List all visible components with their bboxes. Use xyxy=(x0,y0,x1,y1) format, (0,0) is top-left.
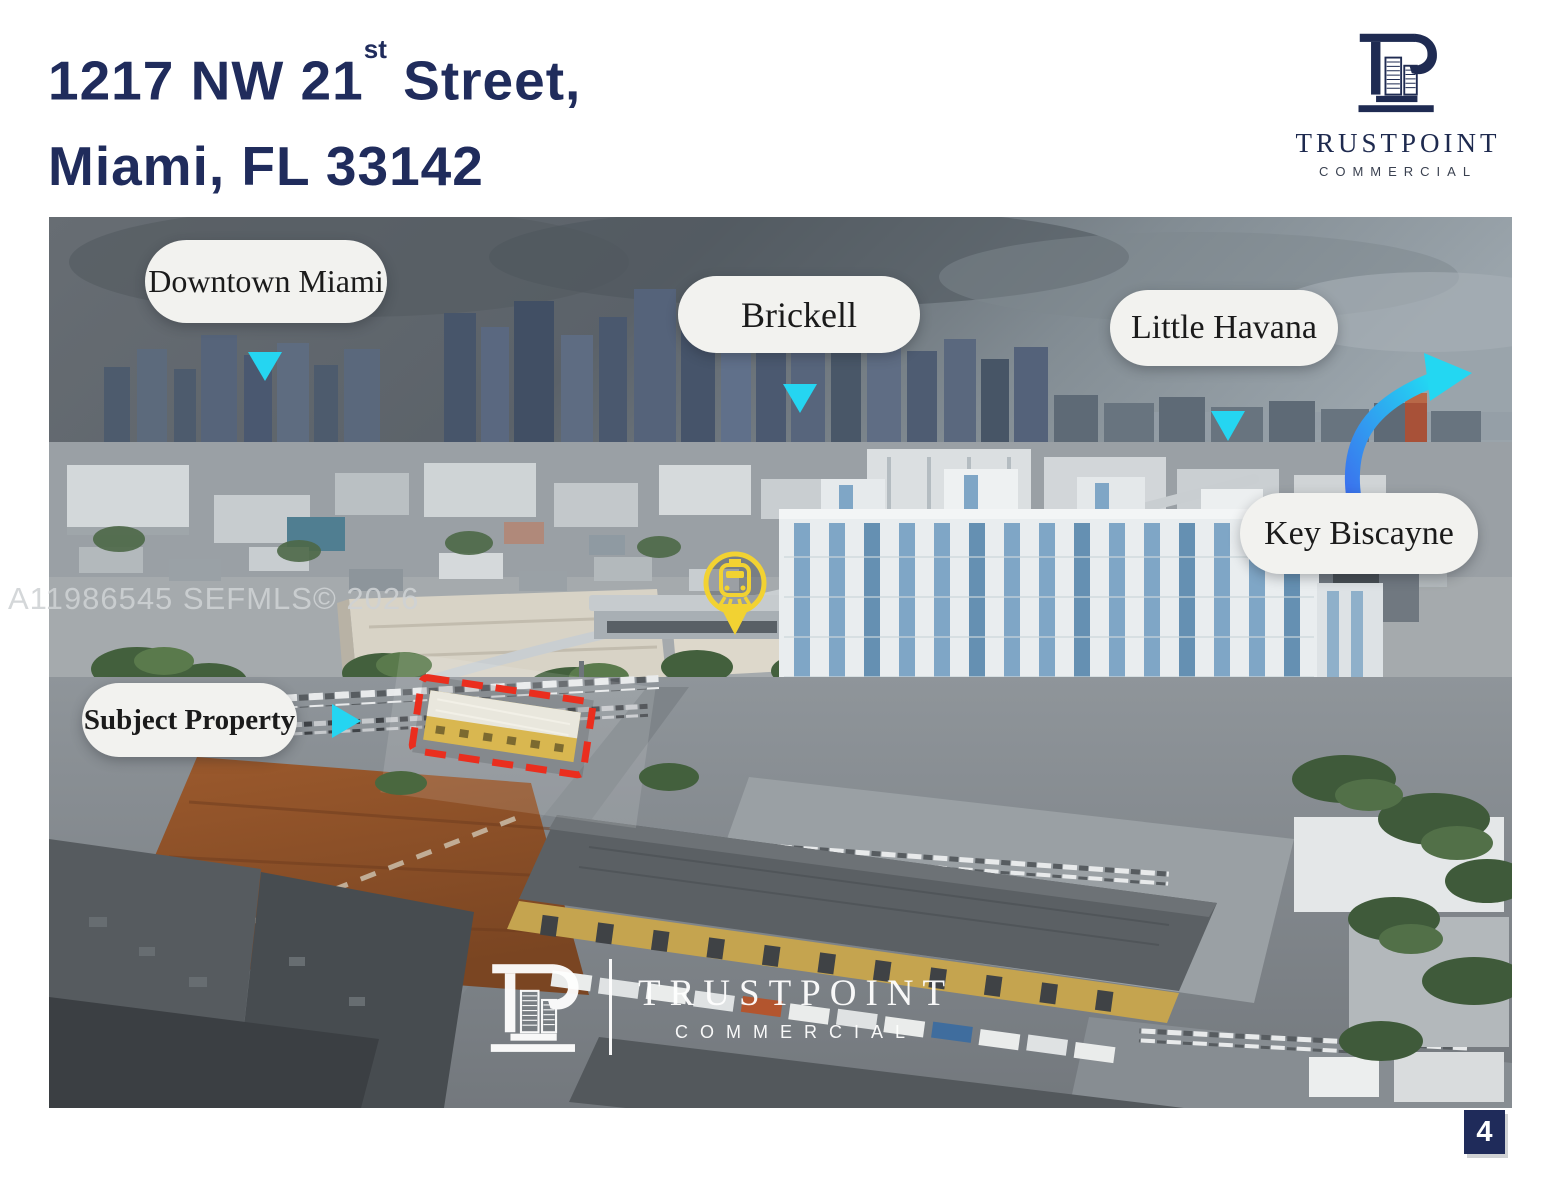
page-title: 1217 NW 21st Street, Miami, FL 33142 xyxy=(48,28,581,209)
watermark-brand-division: COMMERCIAL xyxy=(638,1022,954,1043)
logo-divider xyxy=(609,959,612,1055)
key-biscayne-arrow-icon xyxy=(1294,345,1484,505)
brand-division: COMMERCIAL xyxy=(1278,164,1518,179)
brochure-page: 1217 NW 21st Street, Miami, FL 33142 TRU… xyxy=(0,0,1553,1200)
brand-name: TRUSTPOINT xyxy=(1278,128,1518,159)
little-havana-arrow-icon xyxy=(1206,367,1250,445)
tp-monogram-icon xyxy=(487,960,583,1054)
metrorail-station-pin-icon xyxy=(689,545,781,637)
ordinal-superscript: st xyxy=(364,34,387,64)
watermark-brand-name: TRUSTPOINT xyxy=(638,972,954,1015)
trustpoint-photo-watermark: TRUSTPOINT COMMERCIAL xyxy=(487,959,954,1055)
subject-property-arrow-icon xyxy=(299,700,365,742)
label-downtown-miami: Downtown Miami xyxy=(145,240,387,323)
address-line-2: Miami, FL 33142 xyxy=(48,123,581,209)
label-subject-property: Subject Property xyxy=(82,683,297,757)
label-key-biscayne: Key Biscayne xyxy=(1240,493,1478,574)
page-number-badge: 4 xyxy=(1464,1110,1505,1154)
trustpoint-logo: TRUSTPOINT COMMERCIAL xyxy=(1278,30,1518,179)
label-brickell: Brickell xyxy=(678,276,920,353)
downtown-miami-arrow-icon xyxy=(243,325,287,385)
tp-monogram-icon xyxy=(1356,30,1440,114)
brickell-arrow-icon xyxy=(778,357,822,417)
mls-watermark: A11986545 SEFMLS© 2026 xyxy=(8,581,419,617)
address-line-1: 1217 NW 21st Street, xyxy=(48,28,581,123)
aerial-photo: Downtown Miami Brickell Little Havana Ke… xyxy=(49,217,1512,1108)
